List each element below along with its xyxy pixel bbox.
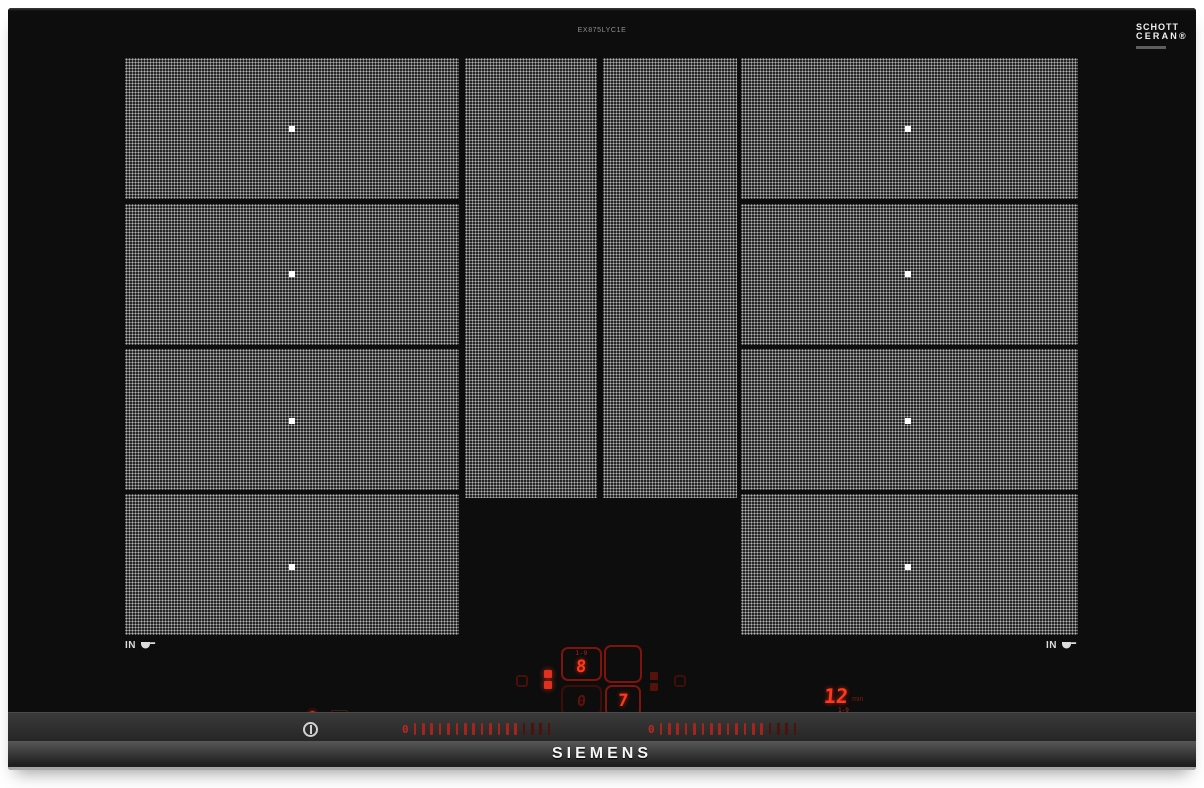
left-zone-power-display[interactable]: 1-9 8 (561, 647, 602, 681)
schott-logo-line2: CERAN® (1136, 32, 1188, 41)
zone-center-dot (289, 271, 295, 277)
zone-center-dot (289, 126, 295, 132)
front-trim: SIEMENS (8, 741, 1196, 767)
flex-zone-icon-right[interactable] (650, 672, 658, 694)
pan-detection-icon (1061, 640, 1077, 651)
model-number-label: EX875LYC1E (8, 27, 1196, 34)
left-zone-secondary-digit: 0 (576, 692, 586, 710)
slider-ticks[interactable] (414, 723, 551, 735)
right-zone-power-digit: 7 (617, 691, 629, 711)
zone-center-dot (905, 418, 911, 424)
left-power-slider[interactable]: 0 (402, 721, 550, 737)
in-label: IN (125, 640, 136, 651)
right-zone-selector-field[interactable] (604, 645, 642, 683)
pan-detection-icon (140, 640, 156, 651)
front-control-band (8, 712, 1196, 741)
timer-display[interactable]: 12 min (824, 686, 863, 706)
zone-center-dot (289, 564, 295, 570)
left-zone-power-digit: 8 (576, 657, 588, 677)
flex-zone-icon-left[interactable] (544, 670, 552, 692)
cooking-zone-center-right-strip (603, 58, 737, 498)
zone-center-dot (289, 418, 295, 424)
front-trim-edge (8, 767, 1196, 770)
induction-cooktop: EX875LYC1E SCHOTT CERAN® IN (8, 8, 1196, 770)
zone-center-dot (905, 126, 911, 132)
cooking-zone-center-left-strip (465, 58, 597, 498)
in-marking-left: IN (125, 640, 156, 651)
in-label: IN (1046, 640, 1057, 651)
power-icon[interactable] (303, 722, 318, 737)
slider-zero-label[interactable]: 0 (402, 724, 409, 735)
right-power-slider[interactable]: 0 (648, 721, 796, 737)
zone-center-dot (905, 271, 911, 277)
schott-logo-fineprint-bar (1136, 46, 1166, 49)
glass-top-edge (8, 8, 1196, 11)
zone-center-dot (905, 564, 911, 570)
slider-ticks[interactable] (660, 723, 797, 735)
keep-warm-icon-left[interactable] (516, 675, 528, 687)
brand-logo: SIEMENS (552, 745, 652, 763)
timer-unit: min (852, 696, 863, 703)
slider-zero-label[interactable]: 0 (648, 724, 655, 735)
keep-warm-icon-right[interactable] (674, 675, 686, 687)
product-photo-siemens-induction-hob: EX875LYC1E SCHOTT CERAN® IN (0, 0, 1204, 788)
in-marking-right: IN (1046, 640, 1077, 651)
timer-value: 12 (823, 686, 849, 706)
schott-ceran-logo: SCHOTT CERAN® (1136, 23, 1188, 49)
